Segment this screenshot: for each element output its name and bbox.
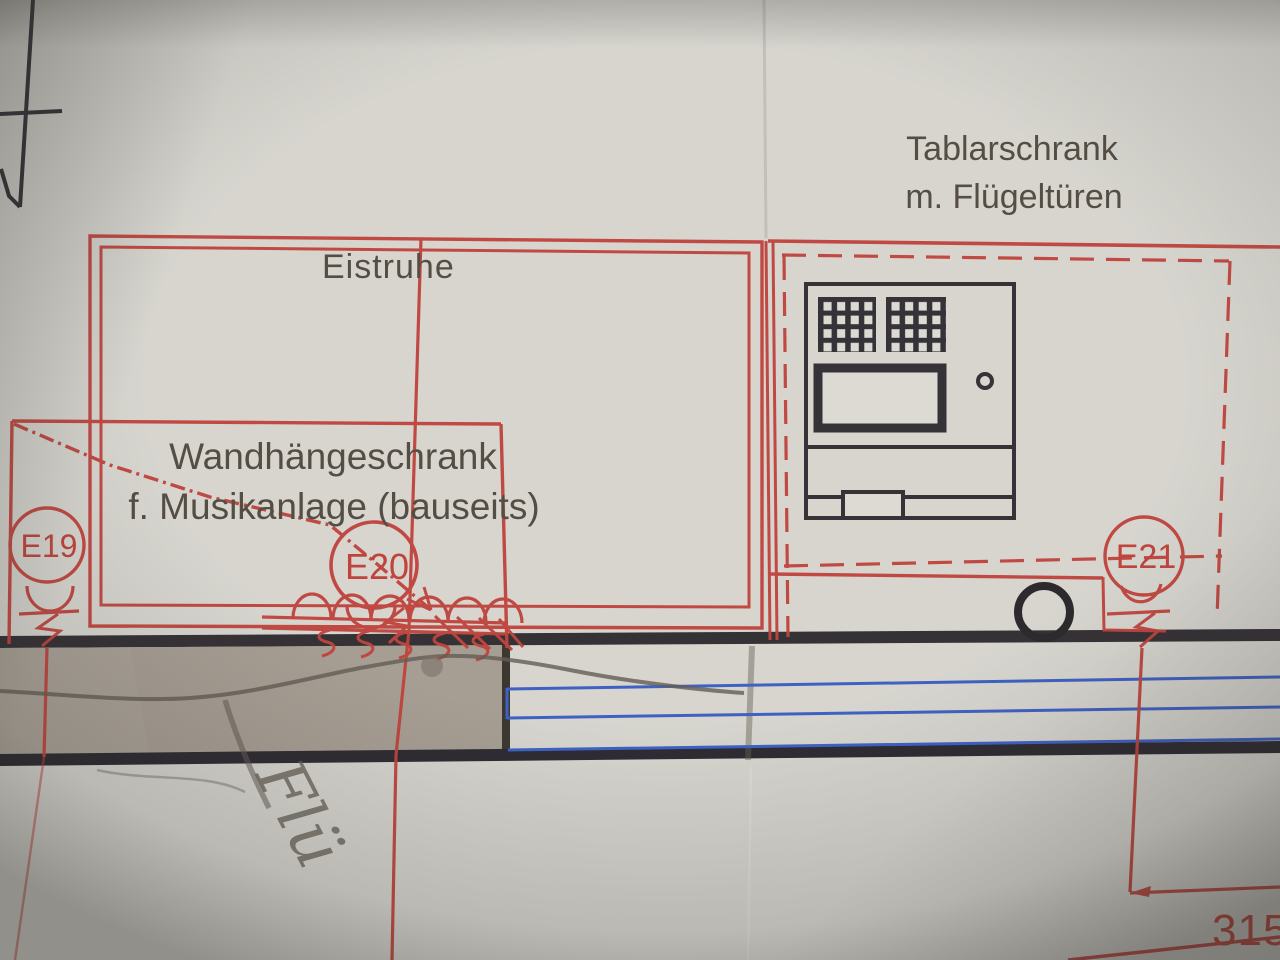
topleft-line bbox=[20, 0, 33, 207]
e19-drop-line-faint bbox=[15, 757, 44, 960]
wand-box-top bbox=[12, 421, 501, 424]
tablarschrank-label-line1: Tablarschrank bbox=[906, 130, 1119, 168]
printed-labels: Eistruhe Wandhängeschrank f. Musikanlage… bbox=[128, 130, 1122, 527]
photographed-floor-plan: { "plan": { "cabinet_labels": { "tablars… bbox=[0, 0, 1280, 960]
topleft-arrowhead bbox=[1, 169, 20, 207]
e21-label: E21 bbox=[1116, 538, 1177, 576]
e21-drop-line bbox=[1130, 648, 1142, 892]
eistruhe-inner-border bbox=[101, 247, 749, 607]
dimension-line bbox=[1130, 887, 1280, 893]
wandhaengeschrank-label-line2: f. Musikanlage (bauseits) bbox=[128, 486, 539, 527]
tablar-top-dashed bbox=[782, 255, 1229, 261]
fold-crease-bottom bbox=[748, 766, 751, 960]
eistruhe-label: Eistruhe bbox=[322, 248, 455, 286]
panel-foot-notch bbox=[843, 492, 903, 518]
blue-guide-lines bbox=[507, 677, 1280, 750]
keypad-grid-left-icon bbox=[818, 297, 876, 352]
wandhaengeschrank-label-line1: Wandhängeschrank bbox=[169, 436, 497, 477]
eistruhe-outer-border bbox=[90, 236, 762, 628]
topleft-dimension-mark bbox=[0, 0, 62, 207]
pencil-faint-curve bbox=[97, 770, 245, 792]
upper-wall-band bbox=[0, 629, 1280, 648]
control-panel bbox=[806, 284, 1014, 518]
black-ink-elements bbox=[0, 0, 1070, 638]
fold-smudge-middle bbox=[748, 646, 752, 760]
fold-crease-top bbox=[764, 0, 766, 238]
topleft-dash bbox=[0, 111, 62, 114]
plan-drawing: Eistruhe Wandhängeschrank f. Musikanlage… bbox=[0, 0, 1280, 960]
tablar-top-solid bbox=[768, 241, 1280, 247]
tablar-left-solid-2 bbox=[773, 242, 777, 640]
wand-box-right bbox=[501, 424, 507, 648]
red-plan-linework bbox=[9, 236, 1280, 960]
tablar-right-dashed bbox=[1217, 261, 1230, 618]
e21-bar bbox=[1107, 611, 1170, 614]
dimension-label: 3150 bbox=[1212, 906, 1280, 955]
panel-display bbox=[818, 368, 942, 428]
tablar-left-solid-1 bbox=[766, 241, 770, 640]
socket-circle-icon bbox=[1018, 586, 1070, 638]
handwriting-label: Flü bbox=[240, 746, 359, 879]
pencil-blob bbox=[421, 655, 443, 677]
blue-line-middle bbox=[507, 707, 1280, 718]
e19-label: E19 bbox=[21, 528, 78, 564]
tablar-bottom-solid bbox=[770, 574, 1103, 578]
e19-cup-icon bbox=[27, 586, 73, 611]
keypad-grid-right-icon bbox=[886, 297, 946, 352]
e21-bracket bbox=[1103, 577, 1166, 631]
eistruhe-box bbox=[90, 236, 762, 628]
e19-bar bbox=[19, 611, 79, 614]
tablar-left-dashed bbox=[784, 256, 788, 637]
panel-knob-icon bbox=[978, 374, 992, 388]
e20-label: E20 bbox=[345, 546, 409, 587]
tablarschrank-label-line2: m. Flügeltüren bbox=[905, 178, 1122, 216]
